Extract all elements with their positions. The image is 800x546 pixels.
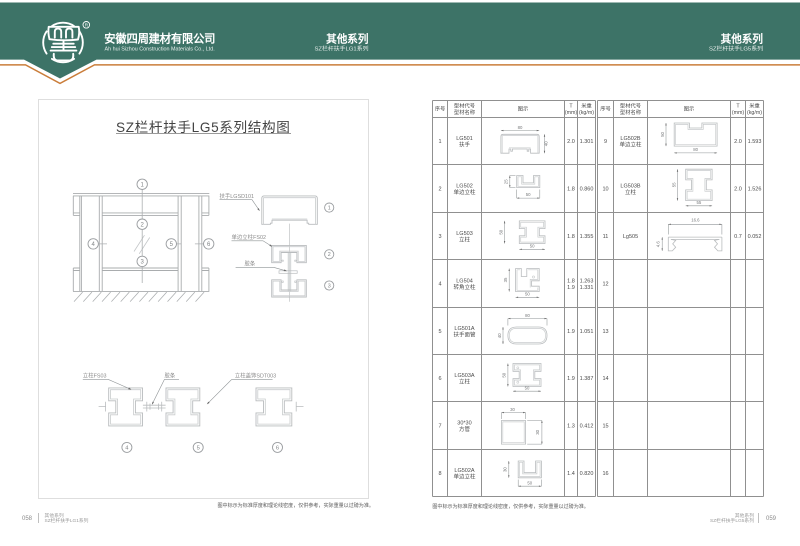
svg-text:6: 6 (438, 376, 441, 382)
svg-text:Ah hui Sizhou Construction Mat: Ah hui Sizhou Construction Materials Co.… (105, 47, 215, 53)
svg-text:7: 7 (438, 424, 441, 430)
svg-text:胶条: 胶条 (245, 259, 256, 267)
svg-text:2: 2 (141, 222, 145, 228)
svg-text:胶条: 胶条 (165, 372, 176, 380)
svg-text:3: 3 (438, 234, 441, 240)
svg-text:SZ栏杆扶手LG5系列: SZ栏杆扶手LG5系列 (709, 44, 763, 52)
svg-text:图示: 图示 (518, 105, 529, 113)
svg-text:8: 8 (438, 471, 441, 477)
svg-text:方管: 方管 (459, 425, 471, 433)
svg-text:0.7: 0.7 (734, 234, 742, 240)
svg-text:单边立柱: 单边立柱 (453, 472, 476, 480)
svg-text:0.052: 0.052 (748, 234, 762, 240)
svg-text:1.526: 1.526 (748, 187, 762, 193)
svg-text:3: 3 (328, 283, 331, 289)
svg-text:单边立柱FS02: 单边立柱FS02 (232, 233, 266, 241)
svg-text:LG502: LG502 (456, 183, 473, 189)
svg-text:扶手: 扶手 (459, 140, 471, 148)
svg-text:0.412: 0.412 (580, 424, 594, 430)
svg-text:40: 40 (497, 333, 502, 338)
svg-text:30*30: 30*30 (457, 420, 471, 426)
svg-text:5: 5 (438, 329, 441, 335)
svg-text:9: 9 (604, 139, 607, 145)
svg-text:50: 50 (498, 229, 503, 234)
svg-text:1.4: 1.4 (567, 471, 575, 477)
svg-text:2: 2 (438, 187, 441, 193)
svg-text:型材名称: 型材名称 (620, 108, 642, 116)
svg-text:1.301: 1.301 (580, 139, 594, 145)
svg-text:LG501: LG501 (456, 136, 473, 142)
svg-text:50: 50 (525, 292, 530, 297)
svg-text:其他系列: 其他系列 (326, 32, 368, 45)
svg-text:LG501A: LG501A (454, 326, 475, 332)
svg-text:16.6: 16.6 (691, 217, 700, 222)
svg-text:4.6: 4.6 (655, 241, 660, 248)
svg-text:(mm): (mm) (732, 110, 745, 116)
svg-text:1: 1 (328, 206, 331, 212)
svg-text:10: 10 (602, 187, 608, 193)
svg-text:立柱: 立柱 (625, 188, 637, 196)
svg-text:1: 1 (438, 139, 441, 145)
svg-text:LG503: LG503 (456, 231, 473, 237)
svg-text:1.331: 1.331 (580, 285, 594, 291)
svg-text:R: R (85, 23, 89, 29)
svg-text:序号: 序号 (600, 105, 611, 113)
svg-text:扶手面管: 扶手面管 (453, 330, 476, 338)
svg-text:80: 80 (525, 313, 530, 318)
svg-text:11: 11 (603, 234, 609, 240)
svg-text:图示: 图示 (684, 105, 695, 113)
svg-text:30: 30 (510, 407, 515, 412)
svg-text:转角立柱: 转角立柱 (453, 283, 476, 291)
svg-text:1: 1 (141, 183, 145, 189)
svg-text:1.9: 1.9 (567, 329, 575, 335)
svg-text:T: T (736, 104, 740, 110)
svg-text:Lg505: Lg505 (623, 234, 638, 240)
svg-text:立柱盖饰SDT003: 立柱盖饰SDT003 (235, 372, 276, 380)
svg-text:单边立柱: 单边立柱 (453, 188, 476, 196)
svg-text:14: 14 (602, 376, 608, 382)
svg-text:立柱FS03: 立柱FS03 (83, 372, 107, 380)
svg-text:型材代号: 型材代号 (454, 102, 475, 110)
svg-text:(kg/m): (kg/m) (747, 110, 762, 116)
svg-text:4: 4 (92, 242, 96, 248)
svg-text:50: 50 (502, 372, 507, 377)
svg-text:13: 13 (602, 329, 608, 335)
svg-text:2.0: 2.0 (734, 187, 742, 193)
svg-text:50: 50 (525, 386, 530, 391)
svg-text:12: 12 (602, 282, 608, 288)
svg-text:30: 30 (503, 467, 508, 472)
svg-text:LG503A: LG503A (454, 373, 475, 379)
svg-text:LG503B: LG503B (620, 183, 641, 189)
svg-text:1.355: 1.355 (580, 234, 594, 240)
svg-text:1.263: 1.263 (580, 278, 594, 284)
svg-text:1.8: 1.8 (567, 278, 575, 284)
svg-text:1.593: 1.593 (748, 139, 762, 145)
svg-text:SZ栏杆扶手LG1系列: SZ栏杆扶手LG1系列 (314, 44, 368, 52)
svg-text:5: 5 (197, 446, 200, 452)
svg-text:50: 50 (527, 480, 532, 485)
svg-text:米重: 米重 (749, 102, 760, 110)
svg-text:1.8: 1.8 (567, 234, 575, 240)
svg-text:6: 6 (207, 242, 211, 248)
svg-text:立柱: 立柱 (459, 235, 471, 243)
svg-text:序号: 序号 (435, 105, 446, 113)
svg-text:1.387: 1.387 (580, 376, 594, 382)
svg-text:80: 80 (518, 125, 523, 130)
svg-text:LG502A: LG502A (454, 468, 475, 474)
svg-text:25: 25 (504, 179, 509, 184)
svg-text:LG504: LG504 (456, 278, 473, 284)
svg-text:1.9: 1.9 (567, 376, 575, 382)
svg-text:单边立柱: 单边立柱 (619, 140, 642, 148)
svg-text:30: 30 (535, 429, 540, 434)
svg-text:型材名称: 型材名称 (454, 108, 476, 116)
svg-text:50: 50 (660, 132, 665, 137)
svg-text:40: 40 (543, 141, 548, 146)
svg-text:15: 15 (602, 424, 608, 430)
svg-text:2.0: 2.0 (567, 139, 575, 145)
svg-text:35: 35 (503, 277, 508, 282)
svg-text:50: 50 (526, 192, 531, 197)
svg-text:T: T (569, 104, 573, 110)
svg-text:0.860: 0.860 (580, 187, 594, 193)
svg-text:米重: 米重 (581, 102, 592, 110)
svg-text:1.9: 1.9 (567, 285, 575, 291)
svg-text:立柱: 立柱 (459, 377, 471, 385)
svg-text:5: 5 (170, 242, 174, 248)
svg-text:其他系列: 其他系列 (721, 32, 763, 45)
svg-text:4: 4 (438, 282, 441, 288)
svg-text:1.8: 1.8 (567, 187, 575, 193)
svg-text:安徽四周建材有限公司: 安徽四周建材有限公司 (104, 31, 215, 45)
svg-text:6: 6 (276, 446, 279, 452)
svg-text:0.820: 0.820 (580, 471, 594, 477)
svg-text:4: 4 (125, 446, 129, 452)
svg-text:LG502B: LG502B (620, 136, 641, 142)
svg-text:(mm): (mm) (565, 110, 578, 116)
svg-text:80: 80 (693, 147, 698, 152)
svg-text:1.051: 1.051 (580, 329, 594, 335)
svg-text:2.0: 2.0 (734, 139, 742, 145)
svg-text:55: 55 (671, 182, 676, 187)
svg-text:(kg/m): (kg/m) (579, 110, 594, 116)
svg-text:55: 55 (697, 200, 702, 205)
svg-text:型材代号: 型材代号 (620, 102, 641, 110)
svg-text:扶手LGSD101: 扶手LGSD101 (220, 192, 254, 200)
svg-text:16: 16 (602, 471, 608, 477)
svg-text:1.3: 1.3 (567, 424, 575, 430)
svg-text:50: 50 (530, 244, 535, 249)
svg-text:3: 3 (141, 260, 145, 266)
svg-text:2: 2 (328, 252, 331, 258)
